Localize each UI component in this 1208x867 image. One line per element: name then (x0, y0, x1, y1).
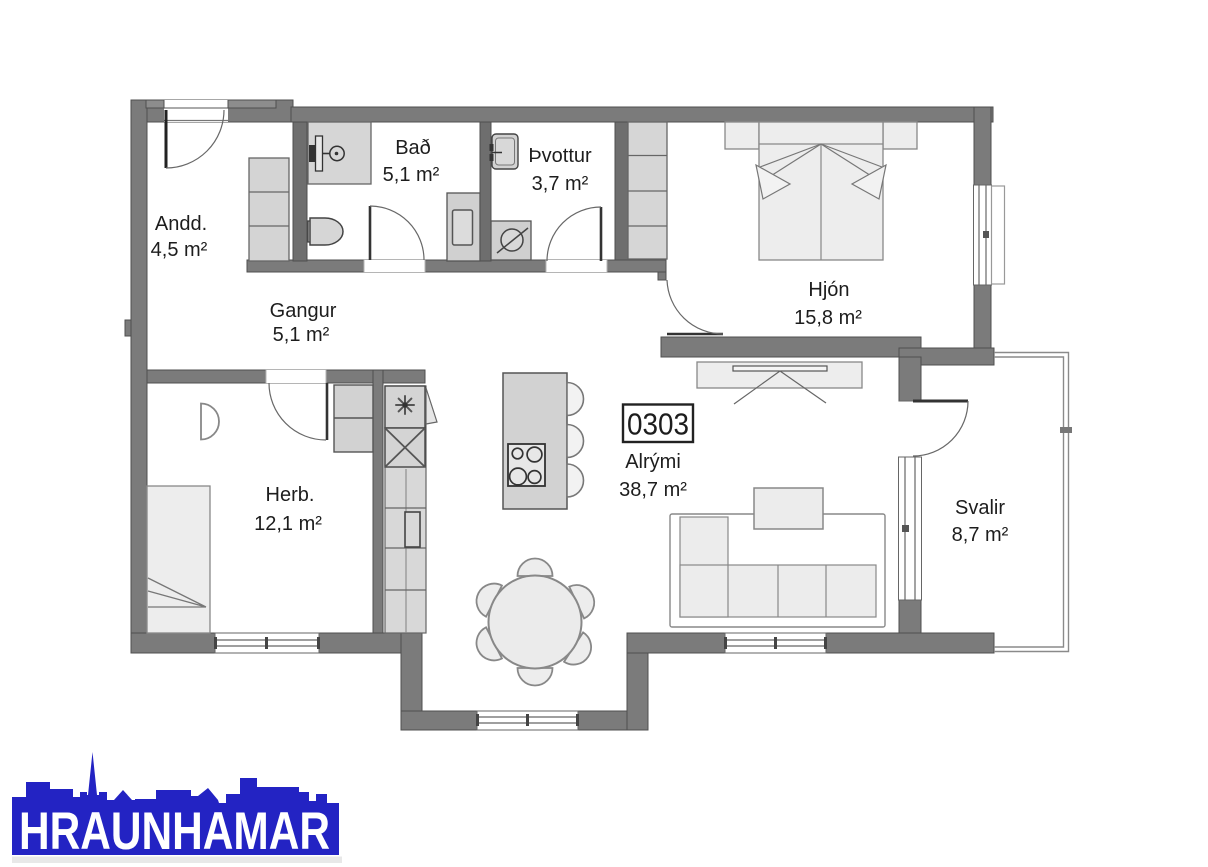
svg-text:3,7 m²: 3,7 m² (532, 173, 589, 195)
svg-text:4,5 m²: 4,5 m² (151, 239, 208, 261)
svg-text:Bað: Bað (395, 137, 431, 159)
svg-text:8,7 m²: 8,7 m² (952, 524, 1009, 546)
svg-text:Alrými: Alrými (625, 451, 681, 473)
svg-text:Herb.: Herb. (266, 484, 315, 506)
svg-text:15,8 m²: 15,8 m² (794, 307, 862, 329)
svg-text:5,1 m²: 5,1 m² (383, 164, 440, 186)
svg-text:5,1 m²: 5,1 m² (273, 324, 330, 346)
svg-text:Gangur: Gangur (270, 300, 337, 322)
svg-text:38,7 m²: 38,7 m² (619, 479, 687, 501)
svg-text:0303: 0303 (627, 407, 689, 442)
svg-text:Svalir: Svalir (955, 497, 1005, 519)
svg-text:HRAUNHAMAR: HRAUNHAMAR (19, 802, 330, 861)
svg-text:Andd.: Andd. (155, 213, 207, 235)
svg-text:Hjón: Hjón (808, 279, 849, 301)
svg-text:12,1 m²: 12,1 m² (254, 513, 322, 535)
svg-text:Þvottur: Þvottur (528, 145, 592, 167)
